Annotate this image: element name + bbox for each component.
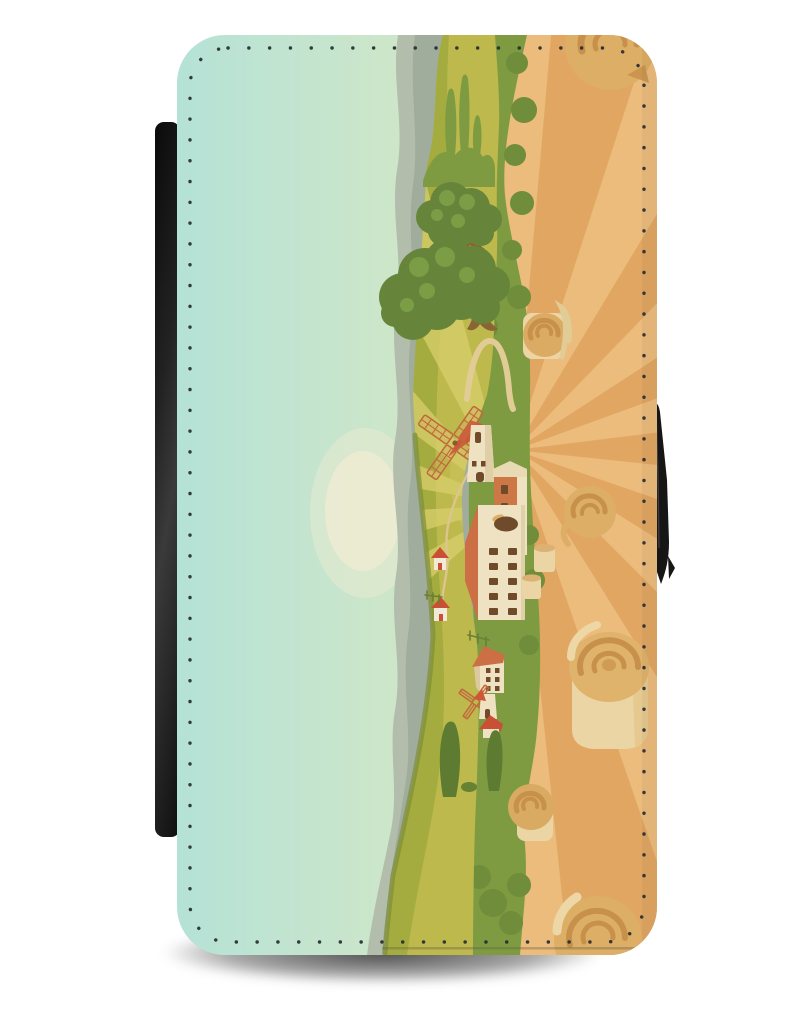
- product-photo: [0, 0, 800, 1024]
- bottom-seam: [382, 947, 642, 950]
- edge-vignette: [642, 35, 657, 955]
- phone-case-front: [177, 35, 657, 955]
- farmhouse: [465, 505, 525, 620]
- hay-bale-mid: [523, 307, 570, 359]
- hayloft-door: [494, 517, 518, 532]
- hay-bale-big: [569, 625, 649, 749]
- clasp-notch: [668, 556, 675, 579]
